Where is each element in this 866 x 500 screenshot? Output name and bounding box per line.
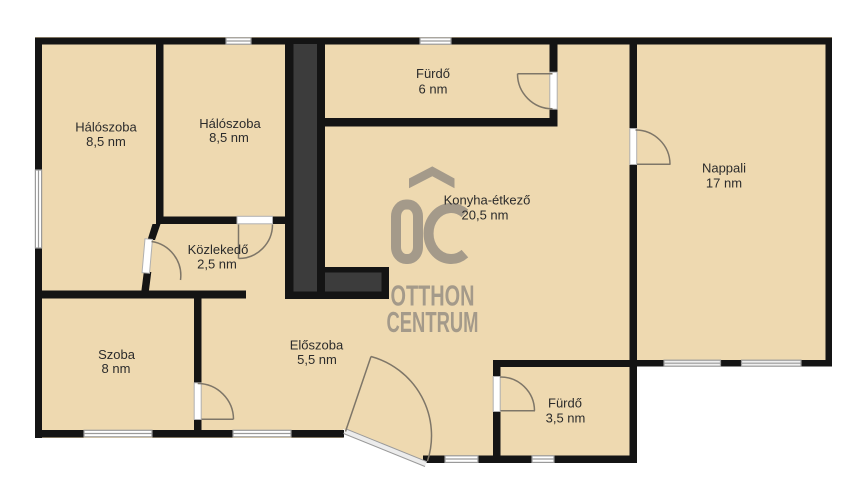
svg-text:20,5 nm: 20,5 nm xyxy=(462,208,509,223)
svg-text:17 nm: 17 nm xyxy=(706,176,742,191)
svg-text:3,5 nm: 3,5 nm xyxy=(546,411,586,426)
svg-text:Hálószoba: Hálószoba xyxy=(199,116,261,131)
svg-text:Fürdő: Fürdő xyxy=(416,66,450,81)
svg-text:Hálószoba: Hálószoba xyxy=(75,120,137,135)
svg-text:Közlekedő: Közlekedő xyxy=(188,242,249,257)
svg-text:8,5 nm: 8,5 nm xyxy=(209,130,249,145)
svg-text:8 nm: 8 nm xyxy=(102,361,131,376)
svg-text:Nappali: Nappali xyxy=(702,161,746,176)
svg-text:Előszoba: Előszoba xyxy=(290,338,344,353)
svg-text:8,5 nm: 8,5 nm xyxy=(86,134,126,149)
svg-text:5,5 nm: 5,5 nm xyxy=(297,352,337,367)
svg-text:6 nm: 6 nm xyxy=(419,82,448,97)
svg-text:Konyha-étkező: Konyha-étkező xyxy=(444,193,531,208)
svg-text:2,5 nm: 2,5 nm xyxy=(197,257,237,272)
svg-text:CENTRUM: CENTRUM xyxy=(387,307,479,339)
svg-text:Fürdő: Fürdő xyxy=(548,396,582,411)
svg-text:Szoba: Szoba xyxy=(98,347,136,362)
